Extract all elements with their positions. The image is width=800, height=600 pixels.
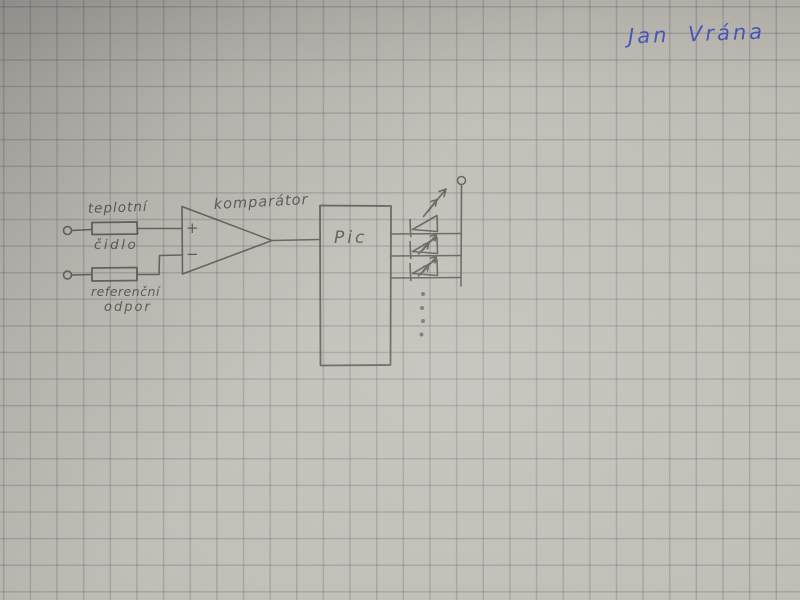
output-terminal <box>458 177 466 185</box>
wire-reference-to-comparator <box>137 255 182 275</box>
comparator-plus-sign: + <box>186 219 199 237</box>
dot-2 <box>420 306 424 310</box>
resistor-sensor-box <box>92 222 138 235</box>
input-terminal-bottom <box>64 271 72 279</box>
comparator-triangle <box>182 207 272 275</box>
led-symbol-1 <box>410 189 446 237</box>
dot-4 <box>420 333 424 337</box>
circuit-sketch: teplotní čidlo referenční odpor komparát… <box>0 0 800 600</box>
wire-led-1 <box>391 234 461 235</box>
wire-led-3 <box>391 278 462 279</box>
dot-3 <box>421 319 425 323</box>
led-2-cathode-bar <box>410 242 411 259</box>
input-terminal-top <box>64 227 72 235</box>
label-comparator: komparátor <box>213 192 309 213</box>
label-pic: Pic <box>334 228 367 248</box>
dot-1 <box>421 292 425 296</box>
more-outputs-dots <box>420 292 426 337</box>
graph-paper-photo: teplotní čidlo referenční odpor komparát… <box>0 0 800 600</box>
led-1-light-arrow-b <box>424 200 438 217</box>
comparator-minus-sign: − <box>186 245 199 263</box>
label-sensor-top: teplotní <box>88 199 150 217</box>
wire-led-2 <box>391 256 462 257</box>
led-1-triangle <box>413 216 438 232</box>
led-2-triangle <box>413 238 438 254</box>
label-sensor-bottom: čidlo <box>94 237 138 253</box>
signature-text: Jan Vrána <box>628 20 766 49</box>
pencil-labels: teplotní čidlo referenční odpor komparát… <box>88 192 368 315</box>
wire-reference-left <box>72 275 93 276</box>
wire-sensor-left <box>72 230 93 231</box>
label-reference-line1: referenční <box>91 284 161 299</box>
label-reference-line2: odpor <box>104 300 152 315</box>
led-3-cathode-bar <box>410 264 411 281</box>
led-3-triangle <box>413 260 438 276</box>
resistor-reference-box <box>92 268 137 282</box>
led-1-cathode-bar <box>410 220 411 237</box>
wire-common <box>461 185 462 287</box>
wire-comparator-to-pic <box>272 240 320 241</box>
